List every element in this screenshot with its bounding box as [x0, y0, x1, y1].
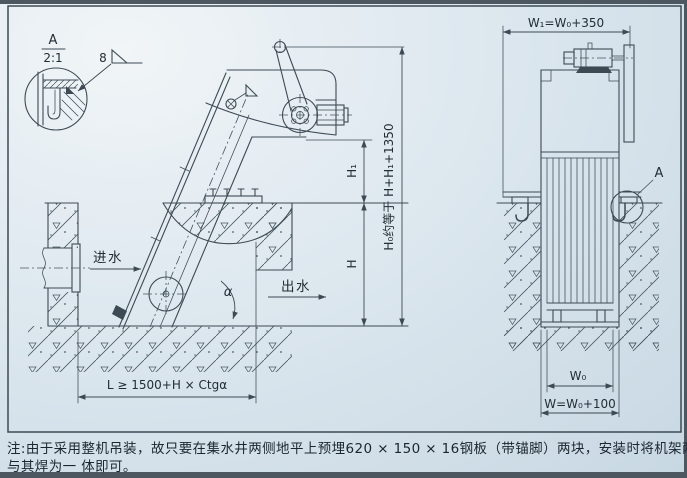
detail-view-label: A [49, 33, 58, 48]
dim-w1-label: W₁=W₀+350 [528, 16, 604, 30]
front-body [541, 70, 619, 327]
side-view [20, 39, 408, 403]
dim-h0-label: H₀约等于 H+H₁+1350 [381, 123, 396, 250]
weld-symbol [78, 50, 142, 91]
side-plate [624, 45, 634, 142]
detail-view-scale: 2:1 [43, 51, 62, 65]
drawing-page: A 2:1 8 进水 出水 α H₁ H H₀约等于 H+H₁+1350 L ≥… [0, 0, 687, 478]
weld-size-label: 8 [99, 51, 107, 65]
outlet-label: 出水 [281, 279, 311, 295]
field-weld-symbol [226, 85, 257, 109]
technical-drawing: A 2:1 8 进水 出水 α H₁ H H₀约等于 H+H₁+1350 L ≥… [0, 0, 687, 478]
front-ground-hatch [504, 203, 659, 351]
section-hatch [60, 88, 85, 120]
dim-h-label: H [345, 259, 359, 268]
dimension-h1 [306, 140, 372, 203]
dim-w0-label: W₀ [570, 369, 587, 383]
dim-w-label: W=W₀+100 [544, 397, 616, 411]
dim-h1-label: H₁ [345, 164, 359, 178]
front-drive-unit [563, 43, 634, 142]
lifting-arm [272, 39, 307, 111]
detail-a-marker-label: A [655, 166, 664, 181]
weld-joint-section [38, 72, 85, 126]
support-base-plate [205, 189, 262, 203]
lower-sprocket [143, 271, 189, 317]
inlet-pipe [20, 244, 90, 292]
inlet-label: 进水 [93, 250, 123, 266]
weld-flag-icon [112, 50, 127, 63]
dim-length-label: L ≥ 1500+H × Ctgα [107, 378, 227, 392]
rake-carriage [112, 305, 127, 320]
anchor-hook-section [48, 88, 60, 119]
note-line-2: 与其焊为一 体即可。 [7, 455, 137, 475]
drive-unit [279, 94, 352, 136]
angle-label: α [224, 285, 233, 300]
screen-bars [547, 158, 613, 303]
front-view [497, 26, 662, 417]
screen-rail-outer [119, 73, 226, 327]
detail-circle [25, 68, 87, 130]
note-line-1: 注:由于采用整机吊装，故只要在集水井两侧地平上预埋620 × 150 × 16钢… [7, 437, 687, 457]
motor-mount [576, 67, 612, 73]
